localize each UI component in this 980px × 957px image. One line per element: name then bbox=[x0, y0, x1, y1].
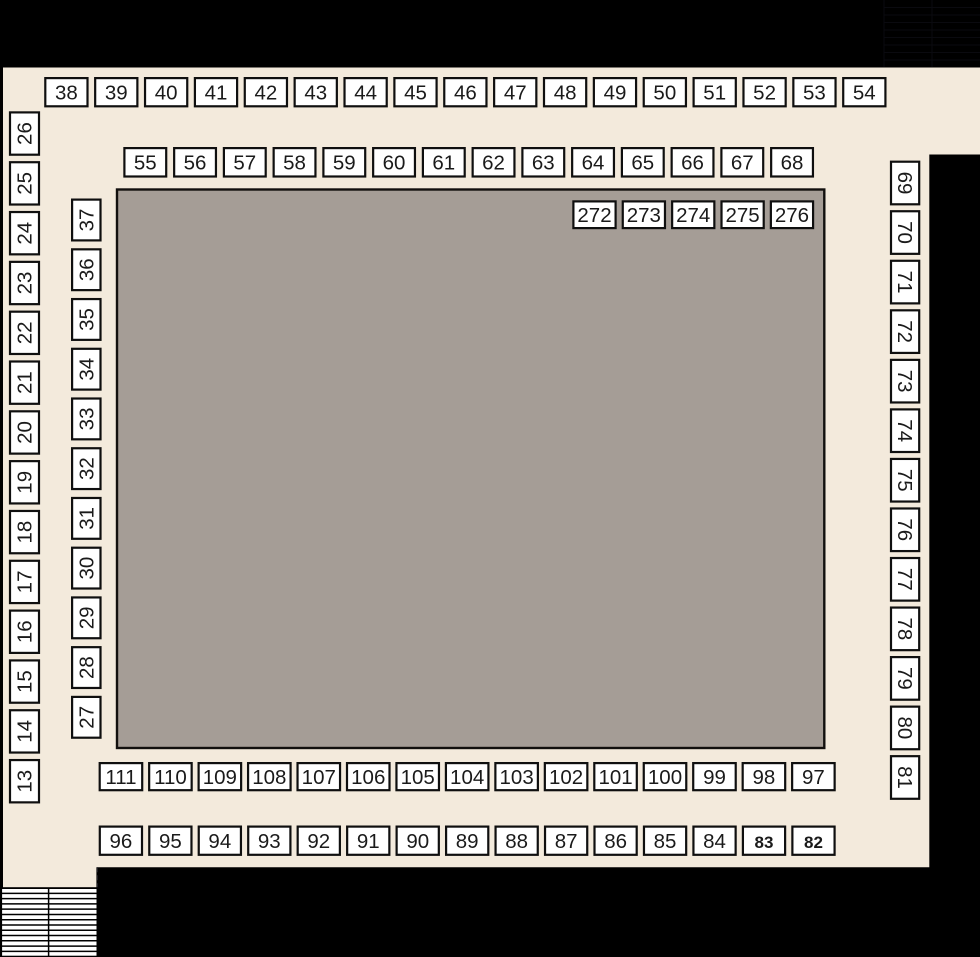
svg-text:36: 36 bbox=[75, 258, 98, 281]
svg-text:72: 72 bbox=[893, 320, 916, 343]
svg-text:37: 37 bbox=[75, 209, 98, 232]
svg-text:272: 272 bbox=[577, 204, 611, 227]
svg-text:75: 75 bbox=[893, 469, 916, 492]
svg-text:39: 39 bbox=[105, 81, 128, 104]
svg-text:59: 59 bbox=[333, 151, 356, 174]
svg-text:52: 52 bbox=[753, 81, 776, 104]
svg-text:95: 95 bbox=[159, 830, 182, 853]
svg-text:46: 46 bbox=[454, 81, 477, 104]
svg-text:88: 88 bbox=[505, 830, 528, 853]
svg-text:104: 104 bbox=[450, 766, 484, 789]
svg-text:63: 63 bbox=[532, 151, 555, 174]
svg-text:24: 24 bbox=[14, 222, 37, 245]
svg-text:276: 276 bbox=[775, 204, 809, 227]
svg-text:54: 54 bbox=[853, 81, 876, 104]
svg-text:89: 89 bbox=[456, 830, 479, 853]
svg-text:60: 60 bbox=[383, 151, 406, 174]
svg-text:105: 105 bbox=[401, 766, 435, 789]
svg-text:91: 91 bbox=[357, 830, 380, 853]
svg-text:23: 23 bbox=[14, 272, 37, 295]
svg-text:48: 48 bbox=[554, 81, 577, 104]
svg-text:16: 16 bbox=[14, 620, 37, 643]
svg-text:73: 73 bbox=[893, 370, 916, 393]
svg-text:55: 55 bbox=[134, 151, 157, 174]
svg-text:40: 40 bbox=[155, 81, 178, 104]
svg-text:85: 85 bbox=[654, 830, 677, 853]
svg-text:51: 51 bbox=[703, 81, 726, 104]
svg-text:275: 275 bbox=[726, 204, 760, 227]
svg-text:69: 69 bbox=[893, 172, 916, 195]
svg-text:53: 53 bbox=[803, 81, 826, 104]
svg-text:50: 50 bbox=[653, 81, 676, 104]
svg-text:30: 30 bbox=[75, 557, 98, 580]
svg-text:68: 68 bbox=[781, 151, 804, 174]
svg-text:274: 274 bbox=[676, 204, 710, 227]
svg-text:35: 35 bbox=[75, 308, 98, 331]
svg-text:27: 27 bbox=[75, 706, 98, 729]
svg-text:92: 92 bbox=[307, 830, 330, 853]
svg-text:102: 102 bbox=[549, 766, 583, 789]
svg-text:43: 43 bbox=[304, 81, 327, 104]
svg-text:21: 21 bbox=[14, 371, 37, 394]
svg-text:49: 49 bbox=[604, 81, 627, 104]
svg-text:98: 98 bbox=[753, 766, 776, 789]
svg-text:70: 70 bbox=[893, 221, 916, 244]
svg-text:93: 93 bbox=[258, 830, 281, 853]
svg-text:57: 57 bbox=[233, 151, 256, 174]
svg-text:19: 19 bbox=[14, 471, 37, 494]
svg-text:61: 61 bbox=[432, 151, 455, 174]
svg-text:109: 109 bbox=[203, 766, 237, 789]
svg-text:273: 273 bbox=[627, 204, 661, 227]
svg-text:83: 83 bbox=[755, 833, 774, 852]
svg-text:13: 13 bbox=[14, 770, 37, 793]
svg-text:29: 29 bbox=[75, 606, 98, 629]
svg-text:78: 78 bbox=[893, 617, 916, 640]
svg-text:58: 58 bbox=[283, 151, 306, 174]
svg-text:86: 86 bbox=[604, 830, 627, 853]
svg-text:66: 66 bbox=[681, 151, 704, 174]
svg-text:100: 100 bbox=[648, 766, 682, 789]
svg-text:62: 62 bbox=[482, 151, 505, 174]
svg-text:79: 79 bbox=[893, 667, 916, 690]
svg-text:71: 71 bbox=[893, 271, 916, 294]
svg-text:80: 80 bbox=[893, 717, 916, 740]
svg-text:18: 18 bbox=[14, 521, 37, 544]
svg-text:38: 38 bbox=[55, 81, 78, 104]
svg-text:103: 103 bbox=[500, 766, 534, 789]
svg-text:17: 17 bbox=[14, 571, 37, 594]
svg-text:47: 47 bbox=[504, 81, 527, 104]
svg-text:106: 106 bbox=[351, 766, 385, 789]
svg-text:108: 108 bbox=[252, 766, 286, 789]
svg-text:64: 64 bbox=[582, 151, 605, 174]
svg-text:90: 90 bbox=[406, 830, 429, 853]
svg-text:42: 42 bbox=[254, 81, 277, 104]
svg-text:15: 15 bbox=[14, 670, 37, 693]
svg-text:77: 77 bbox=[893, 568, 916, 591]
svg-text:31: 31 bbox=[75, 507, 98, 530]
svg-text:99: 99 bbox=[703, 766, 726, 789]
svg-text:25: 25 bbox=[14, 172, 37, 195]
svg-text:96: 96 bbox=[109, 830, 132, 853]
svg-text:45: 45 bbox=[404, 81, 427, 104]
svg-text:111: 111 bbox=[105, 766, 136, 789]
svg-text:76: 76 bbox=[893, 518, 916, 541]
svg-text:110: 110 bbox=[154, 766, 187, 789]
svg-text:94: 94 bbox=[208, 830, 231, 853]
svg-text:32: 32 bbox=[75, 457, 98, 480]
svg-text:56: 56 bbox=[184, 151, 207, 174]
svg-text:84: 84 bbox=[703, 830, 726, 853]
svg-text:107: 107 bbox=[302, 766, 336, 789]
svg-text:26: 26 bbox=[14, 122, 37, 145]
svg-text:41: 41 bbox=[205, 81, 228, 104]
svg-text:14: 14 bbox=[14, 720, 37, 743]
svg-text:67: 67 bbox=[731, 151, 754, 174]
svg-text:20: 20 bbox=[14, 421, 37, 444]
svg-text:28: 28 bbox=[75, 656, 98, 679]
svg-text:81: 81 bbox=[893, 766, 916, 789]
svg-text:82: 82 bbox=[804, 833, 823, 852]
svg-text:97: 97 bbox=[802, 766, 825, 789]
svg-text:87: 87 bbox=[555, 830, 578, 853]
svg-text:101: 101 bbox=[598, 766, 632, 789]
svg-text:65: 65 bbox=[631, 151, 654, 174]
svg-text:33: 33 bbox=[75, 408, 98, 431]
svg-text:74: 74 bbox=[893, 419, 916, 442]
svg-text:44: 44 bbox=[354, 81, 377, 104]
svg-text:34: 34 bbox=[75, 358, 98, 381]
svg-text:22: 22 bbox=[14, 321, 37, 344]
